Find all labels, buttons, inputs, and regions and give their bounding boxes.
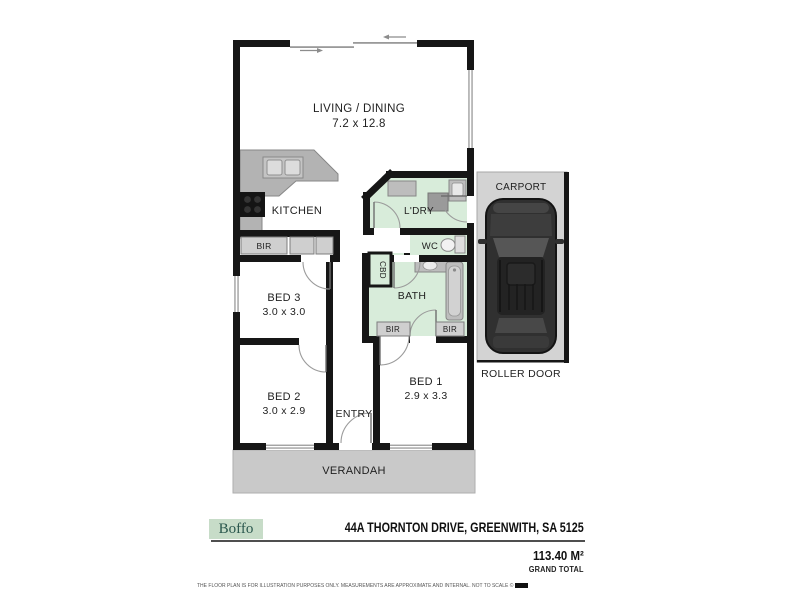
roller-door-label: ROLLER DOOR: [481, 368, 561, 380]
carport-label: CARPORT: [496, 182, 547, 193]
entry-label: ENTRY: [336, 408, 373, 420]
bed1-dims: 2.9 x 3.3: [405, 390, 448, 402]
bir-bed3-label: BIR: [256, 241, 271, 251]
brand-logo-text: Boffo: [219, 521, 254, 538]
bir-right-label: BIR: [443, 325, 457, 334]
floorplan-page: LIVING / DINING 7.2 x 12.8 KITCHEN L'DRY…: [0, 0, 800, 600]
bed2-label: BED 2: [267, 391, 300, 403]
robe-bed3: [241, 237, 333, 254]
bir-left-label: BIR: [386, 325, 400, 334]
kitchen-label: KITCHEN: [272, 205, 322, 217]
cbd-label: CBD: [378, 261, 387, 279]
car-top-view: [478, 199, 564, 353]
living-dims: 7.2 x 12.8: [332, 118, 386, 130]
floorplan-provider-logo: [515, 583, 528, 588]
brand-logo: Boffo: [209, 519, 263, 539]
footer-divider: [211, 540, 585, 542]
total-area-value: 113.40 M²: [533, 548, 584, 563]
disclaimer-text: THE FLOOR PLAN IS FOR ILLUSTRATION PURPO…: [197, 583, 528, 589]
living-label: LIVING / DINING: [313, 103, 405, 115]
bed3-label: BED 3: [267, 292, 300, 304]
property-address: 44A THORNTON DRIVE, GREENWITH, SA 5125: [345, 520, 584, 535]
wc-label: WC: [422, 241, 438, 252]
bed2-dims: 3.0 x 2.9: [263, 405, 306, 417]
disclaimer-line: THE FLOOR PLAN IS FOR ILLUSTRATION PURPO…: [197, 583, 513, 589]
laundry-label: L'DRY: [404, 206, 434, 217]
floorplan-svg: LIVING / DINING 7.2 x 12.8 KITCHEN L'DRY…: [0, 0, 800, 600]
bed1-label: BED 1: [409, 376, 442, 388]
verandah-label: VERANDAH: [322, 465, 386, 477]
stove-cooktop: [240, 192, 265, 217]
bed3-dims: 3.0 x 3.0: [263, 306, 306, 318]
total-area-label: GRAND TOTAL: [529, 565, 584, 574]
bath-label: BATH: [398, 290, 426, 302]
